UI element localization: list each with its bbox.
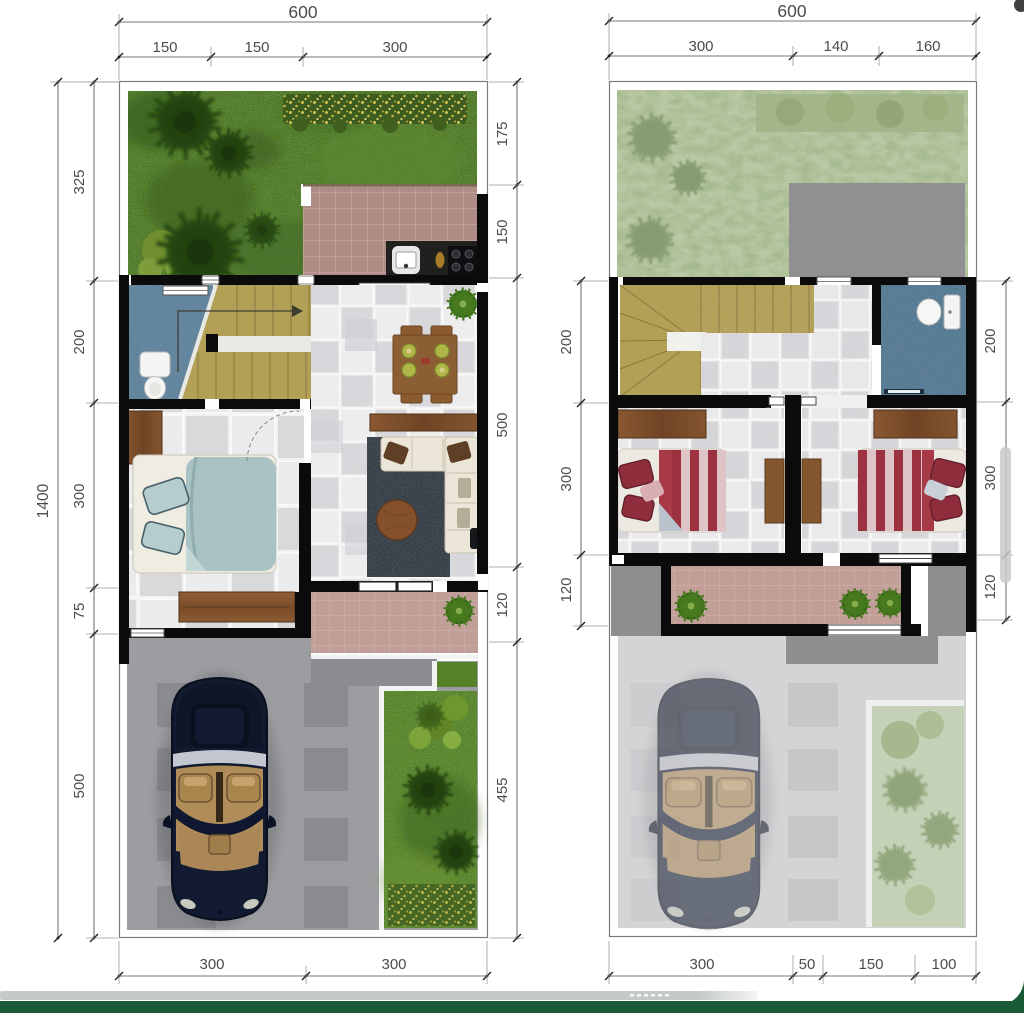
svg-text:300: 300 (689, 956, 714, 973)
svg-text:140: 140 (823, 38, 848, 55)
svg-text:120: 120 (558, 577, 575, 602)
svg-text:325: 325 (71, 169, 88, 194)
svg-text:500: 500 (494, 412, 511, 437)
svg-text:200: 200 (71, 329, 88, 354)
svg-text:200: 200 (558, 329, 575, 354)
svg-text:150: 150 (858, 956, 883, 973)
svg-text:300: 300 (982, 465, 999, 490)
svg-text:455: 455 (494, 777, 511, 802)
svg-text:120: 120 (494, 592, 511, 617)
svg-text:300: 300 (688, 38, 713, 55)
svg-text:120: 120 (982, 574, 999, 599)
svg-text:300: 300 (71, 483, 88, 508)
svg-text:600: 600 (288, 2, 317, 22)
svg-text:150: 150 (244, 39, 269, 56)
svg-text:160: 160 (915, 38, 940, 55)
svg-text:75: 75 (71, 603, 88, 620)
svg-text:150: 150 (152, 39, 177, 56)
svg-text:50: 50 (799, 956, 816, 973)
svg-text:175: 175 (494, 121, 511, 146)
svg-text:300: 300 (199, 956, 224, 973)
svg-text:500: 500 (71, 773, 88, 798)
svg-text:150: 150 (494, 219, 511, 244)
svg-text:1400: 1400 (35, 483, 52, 518)
svg-text:300: 300 (558, 466, 575, 491)
svg-text:200: 200 (982, 328, 999, 353)
svg-text:100: 100 (931, 956, 956, 973)
svg-text:600: 600 (777, 1, 806, 21)
svg-text:300: 300 (381, 956, 406, 973)
svg-text:300: 300 (382, 39, 407, 56)
